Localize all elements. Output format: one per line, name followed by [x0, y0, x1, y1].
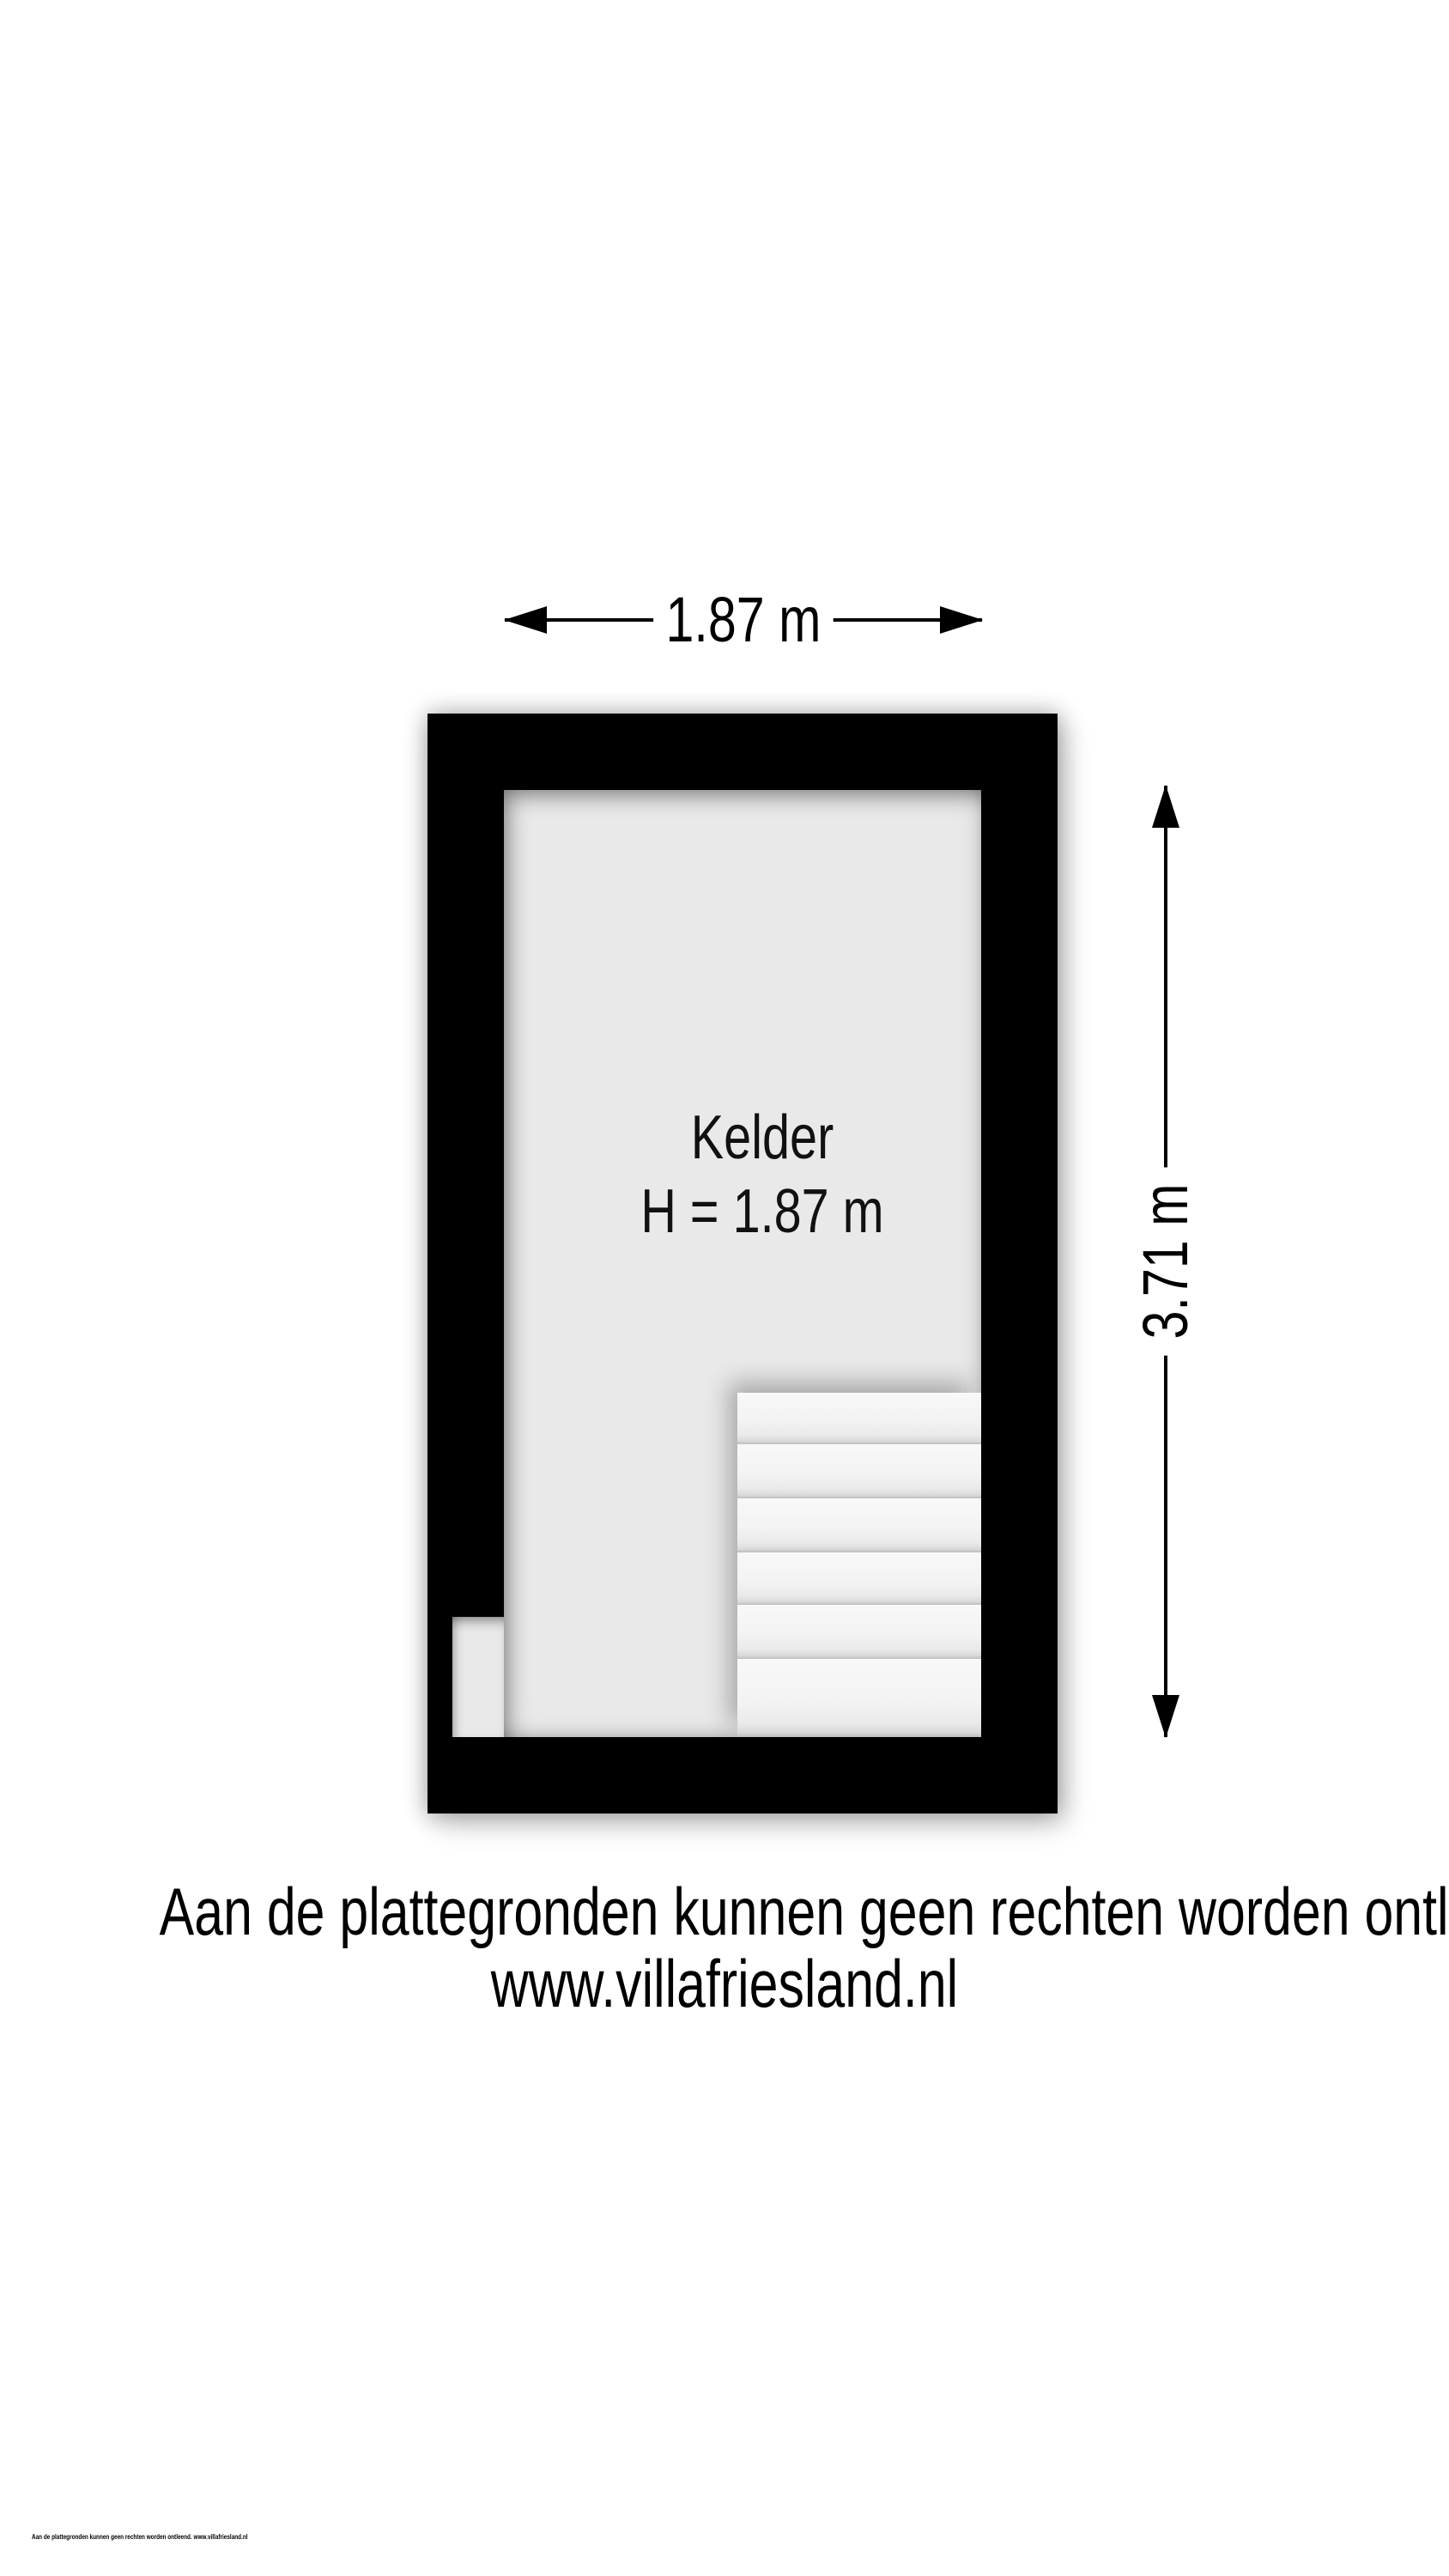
fineprint: Aan de plattegronden kunnen geen rechten…: [32, 2533, 248, 2541]
room-name: Kelder: [640, 1101, 883, 1175]
disclaimer-line1: Aan de plattegronden kunnen geen rechten…: [160, 1875, 1290, 1947]
staircase: [737, 1393, 981, 1737]
floor-notch: [452, 1617, 504, 1737]
disclaimer-line2: www.villafriesland.nl: [160, 1947, 1290, 2020]
arrow-right-icon: [940, 606, 983, 634]
width-dimension-label: 1.87 m: [653, 588, 834, 652]
room-label: Kelder H = 1.87 m: [640, 1101, 883, 1249]
room-height: H = 1.87 m: [640, 1175, 883, 1249]
stair-tread: [737, 1659, 981, 1737]
stair-tread: [737, 1498, 981, 1552]
depth-dimension-label: 3.71 m: [1134, 1167, 1197, 1355]
stair-tread: [737, 1605, 981, 1659]
stair-tread: [737, 1393, 981, 1444]
stair-tread: [737, 1552, 981, 1605]
width-dimension-line: 1.87 m: [505, 618, 982, 622]
stair-tread: [737, 1444, 981, 1498]
arrow-left-icon: [504, 606, 547, 634]
depth-dimension-line: 3.71 m: [1164, 786, 1167, 1737]
disclaimer: Aan de plattegronden kunnen geen rechten…: [160, 1875, 1290, 2020]
arrow-down-icon: [1152, 1695, 1179, 1738]
arrow-up-icon: [1152, 785, 1179, 828]
